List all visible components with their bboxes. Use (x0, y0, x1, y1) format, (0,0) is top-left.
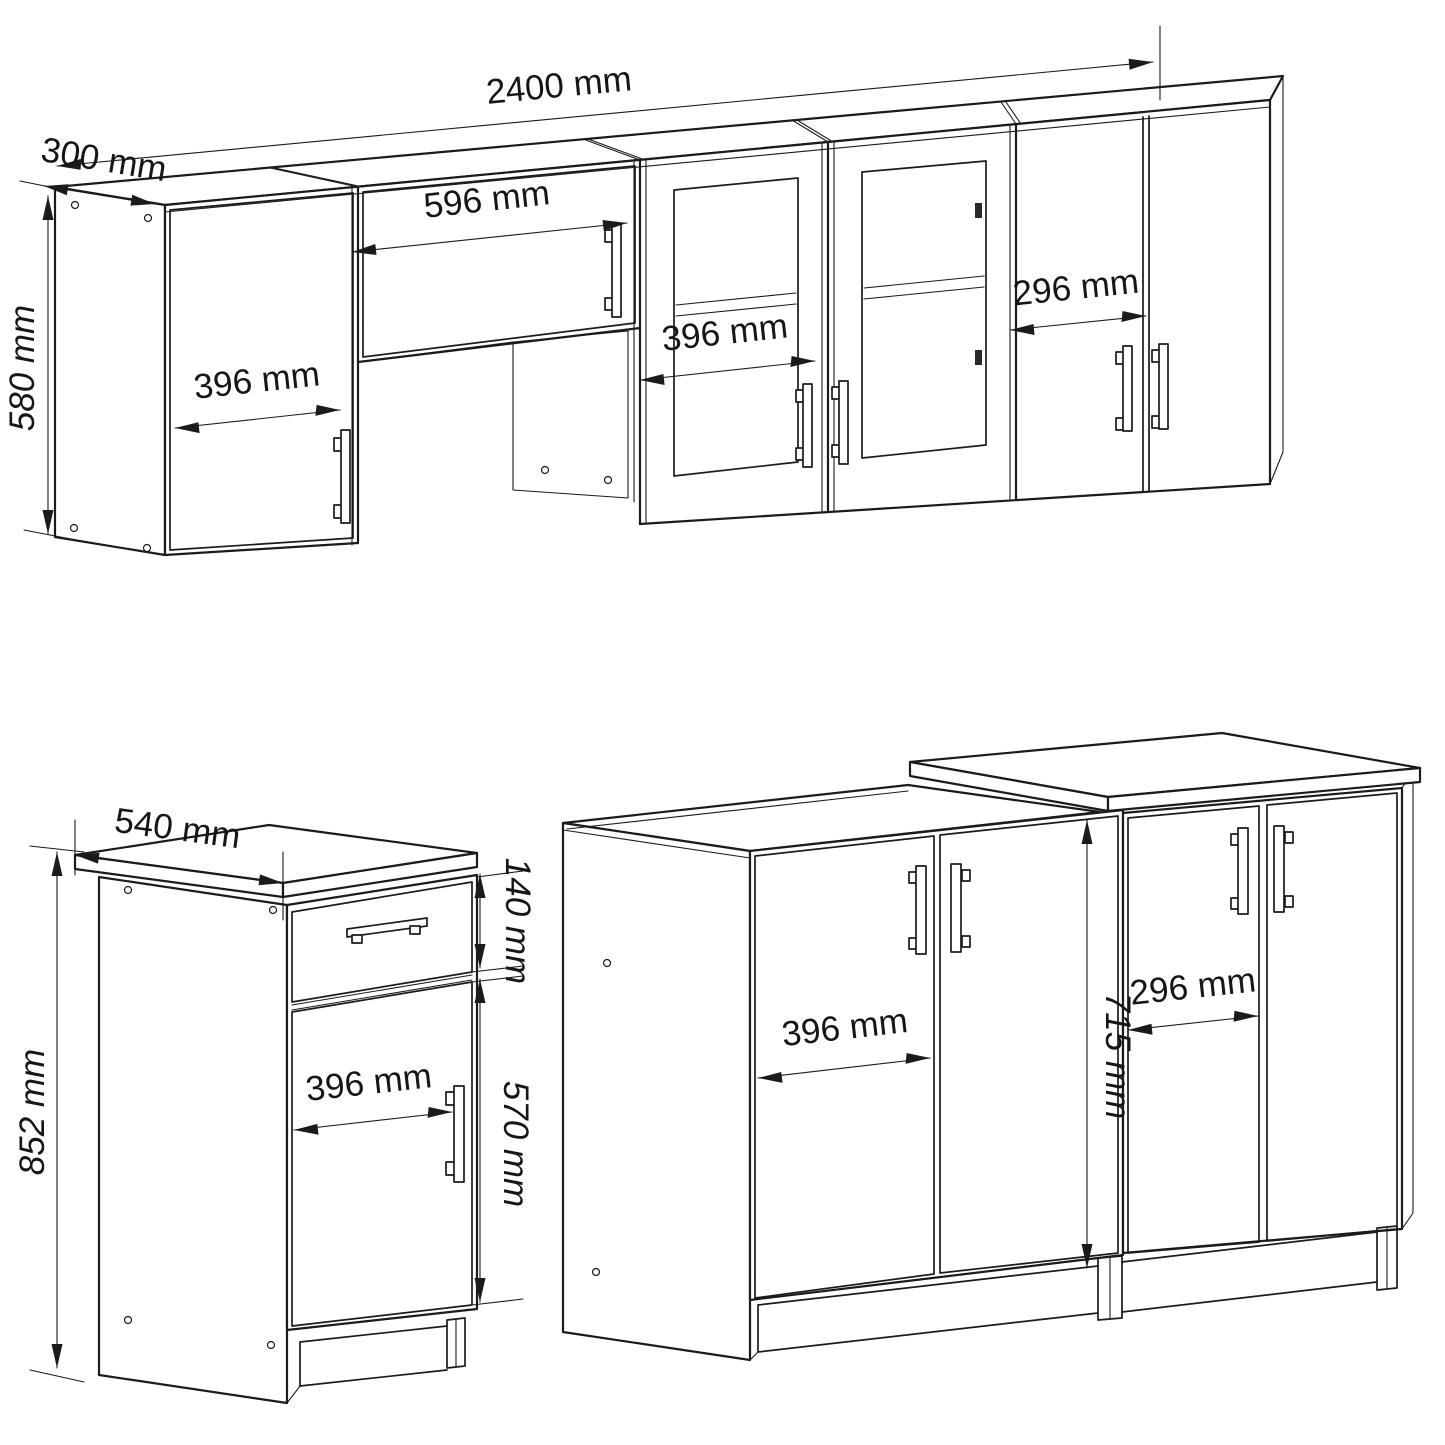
hinge-icon (975, 203, 982, 218)
corner-front-face (750, 810, 1123, 1300)
door-handle (1238, 828, 1248, 914)
furniture-dimension-drawing: 2400 mm 300 mm 580 mm 396 mm 596 mm 396 … (0, 0, 1445, 1445)
door-handle (916, 866, 926, 954)
dim-label-total-width: 2400 mm (484, 59, 633, 112)
right-base-front-face (1123, 788, 1402, 1253)
dim-label-drawer-height: 140 mm (498, 858, 537, 984)
wall-left-side-panel (55, 187, 165, 555)
dim-label-wall-depth: 300 mm (38, 130, 169, 189)
door-handle (1159, 344, 1168, 429)
technical-drawing-svg: 2400 mm 300 mm 580 mm 396 mm 596 mm 396 … (0, 0, 1445, 1445)
door-handle (951, 864, 961, 952)
corner-base-group: 396 mm 296 mm 715 mm (563, 733, 1420, 1360)
base-side-panel (99, 877, 287, 1403)
flap-handle (612, 224, 621, 317)
right-base-side-edge (1402, 772, 1413, 1229)
dim-label-wall-height: 580 mm (3, 305, 42, 431)
glass-door-handle (803, 384, 812, 467)
wall-cabinet-assembly: 2400 mm 300 mm 580 mm 396 mm 596 mm 396 … (3, 26, 1283, 555)
corner-side-panel (563, 823, 750, 1360)
door-handle (1274, 826, 1284, 912)
dim-label-base-height: 852 mm (13, 1049, 52, 1175)
door-handle (341, 430, 350, 523)
hinge-icon (975, 350, 982, 365)
glass-door-handle (839, 381, 848, 464)
base-cabinet: 540 mm 852 mm 140 mm 570 mm 396 mm (13, 801, 537, 1403)
base-plinth (287, 1318, 465, 1403)
door-handle (454, 1086, 464, 1182)
dim-label-base-door-height: 570 mm (496, 1081, 535, 1207)
door-handle (1123, 346, 1132, 431)
dim-label-corner-door-height: 715 mm (1098, 993, 1137, 1119)
